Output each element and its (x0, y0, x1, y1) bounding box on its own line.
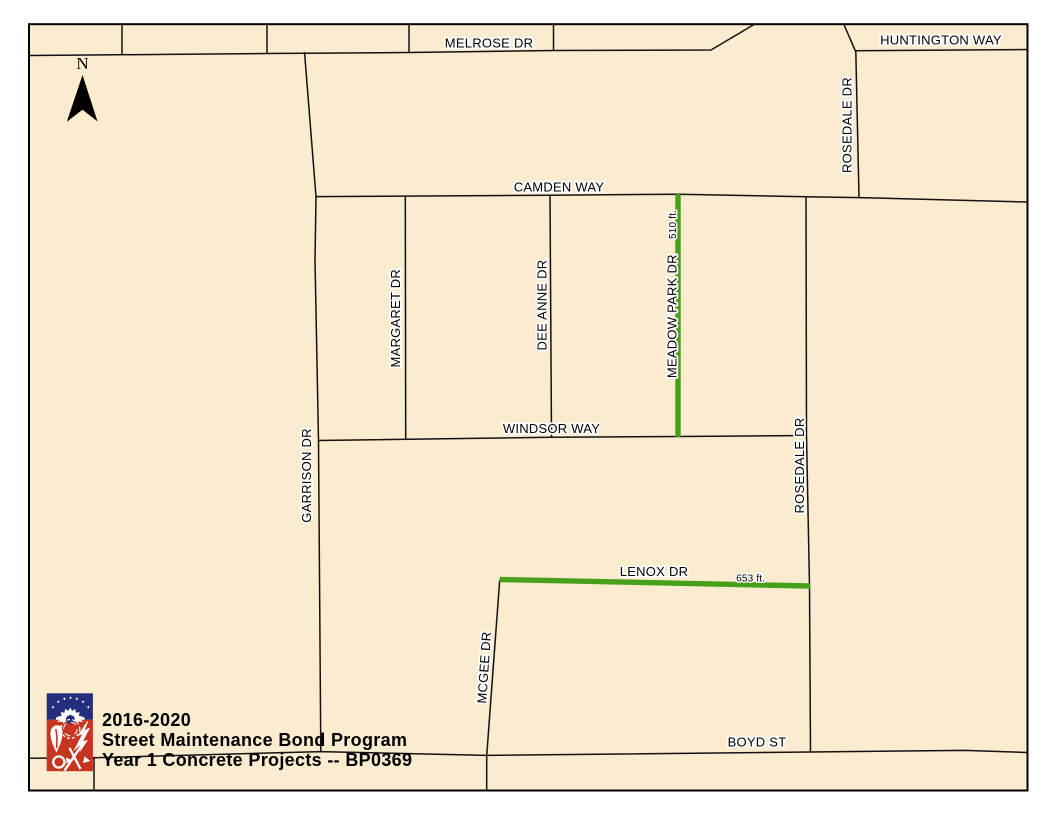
svg-text:MARGARET DR: MARGARET DR (388, 269, 403, 368)
svg-text:DEE ANNE DR: DEE ANNE DR (535, 260, 550, 351)
svg-text:BOYD ST: BOYD ST (728, 735, 787, 750)
svg-text:653 ft.: 653 ft. (736, 574, 765, 585)
svg-text:WINDSOR WAY: WINDSOR WAY (503, 421, 600, 436)
svg-text:CAMDEN WAY: CAMDEN WAY (514, 179, 605, 194)
svg-text:ROSEDALE DR: ROSEDALE DR (792, 418, 807, 514)
svg-text:HUNTINGTON WAY: HUNTINGTON WAY (880, 32, 1002, 47)
svg-text:MEADOW PARK DR: MEADOW PARK DR (665, 254, 680, 378)
svg-text:ROSEDALE DR: ROSEDALE DR (839, 77, 854, 173)
svg-text:Year 1 Concrete Projects -- BP: Year 1 Concrete Projects -- BP0369 (102, 750, 412, 770)
svg-text:2016-2020: 2016-2020 (102, 710, 191, 730)
svg-text:N: N (76, 54, 88, 73)
svg-text:LENOX DR: LENOX DR (620, 564, 688, 579)
svg-text:Street Maintenance Bond Progra: Street Maintenance Bond Program (102, 730, 407, 750)
svg-text:GARRISON DR: GARRISON DR (299, 428, 314, 522)
svg-text:MELROSE DR: MELROSE DR (445, 36, 533, 51)
svg-text:510 ft.: 510 ft. (668, 210, 679, 239)
